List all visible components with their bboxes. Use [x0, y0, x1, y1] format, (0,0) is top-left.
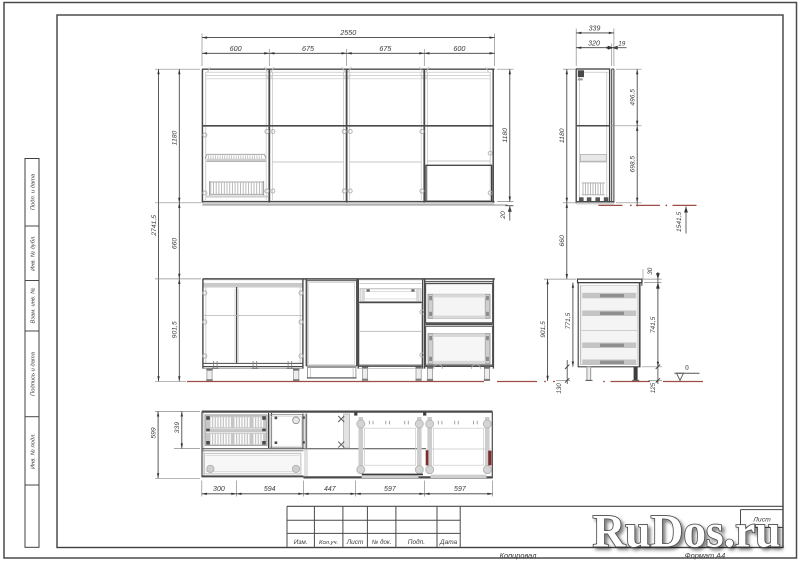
- svg-text:594: 594: [264, 486, 276, 493]
- svg-text:19: 19: [618, 40, 626, 47]
- svg-text:901,5: 901,5: [172, 321, 179, 338]
- svg-text:RuDos.ru: RuDos.ru: [593, 506, 781, 558]
- svg-text:Взам. инв. №: Взам. инв. №: [31, 288, 37, 324]
- svg-text:597: 597: [384, 486, 397, 493]
- svg-text:2741,5: 2741,5: [151, 215, 158, 237]
- svg-text:Лист: Лист: [346, 539, 364, 546]
- svg-text:600: 600: [453, 44, 465, 53]
- svg-text:300: 300: [213, 486, 225, 493]
- svg-text:1180: 1180: [502, 128, 509, 143]
- svg-text:Подп. и дата: Подп. и дата: [31, 173, 37, 210]
- svg-text:20: 20: [500, 211, 507, 220]
- svg-text:698,5: 698,5: [629, 156, 636, 173]
- svg-text:Подпись и дата: Подпись и дата: [31, 351, 37, 396]
- svg-text:597: 597: [454, 486, 467, 493]
- svg-text:1541,5: 1541,5: [676, 211, 683, 232]
- svg-text:447: 447: [324, 486, 337, 493]
- svg-text:125: 125: [650, 382, 657, 393]
- svg-text:0: 0: [685, 363, 689, 372]
- svg-text:Кол.уч.: Кол.уч.: [319, 540, 338, 546]
- svg-text:771,5: 771,5: [565, 312, 572, 329]
- svg-text:30: 30: [647, 267, 654, 275]
- svg-text:660: 660: [559, 235, 566, 247]
- svg-text:660: 660: [172, 238, 179, 250]
- svg-text:600: 600: [230, 44, 242, 53]
- svg-text:339: 339: [174, 422, 181, 434]
- svg-text:Инв. № подл.: Инв. № подл.: [31, 433, 37, 469]
- svg-text:№ док.: № док.: [372, 539, 392, 546]
- svg-text:Изм.: Изм.: [294, 539, 308, 546]
- svg-text:1180: 1180: [172, 130, 179, 145]
- svg-text:339: 339: [589, 26, 601, 33]
- svg-text:496,5: 496,5: [629, 89, 636, 106]
- svg-text:901,5: 901,5: [540, 321, 547, 338]
- svg-text:1180: 1180: [559, 128, 566, 143]
- svg-text:Копировал: Копировал: [500, 551, 538, 560]
- svg-text:599: 599: [150, 427, 157, 439]
- svg-text:Дата: Дата: [439, 539, 458, 546]
- svg-text:130: 130: [556, 383, 563, 394]
- svg-text:Инв. № дубл.: Инв. № дубл.: [31, 235, 37, 271]
- svg-text:320: 320: [588, 40, 600, 47]
- svg-text:2550: 2550: [339, 28, 356, 37]
- svg-text:675: 675: [379, 44, 392, 53]
- svg-text:675: 675: [302, 44, 315, 53]
- svg-text:Подп.: Подп.: [408, 538, 425, 546]
- svg-text:741,5: 741,5: [650, 316, 657, 333]
